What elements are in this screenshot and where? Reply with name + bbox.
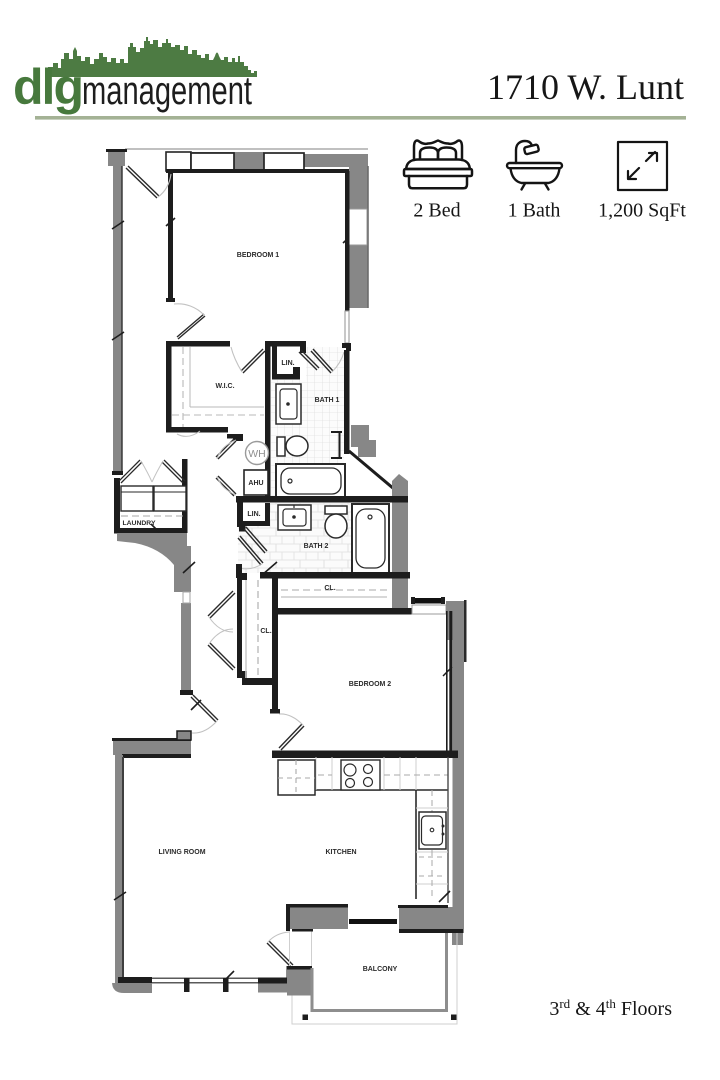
svg-text:LIVING ROOM: LIVING ROOM xyxy=(158,849,205,856)
svg-text:LIN.: LIN. xyxy=(281,360,294,367)
svg-text:management: management xyxy=(82,69,252,113)
svg-text:WH: WH xyxy=(248,448,266,460)
svg-text:BALCONY: BALCONY xyxy=(363,966,398,973)
svg-text:LAUNDRY: LAUNDRY xyxy=(123,520,156,527)
svg-text:1710 W. Lunt: 1710 W. Lunt xyxy=(487,67,684,107)
svg-text:LIN.: LIN. xyxy=(247,511,260,518)
svg-text:BEDROOM 2: BEDROOM 2 xyxy=(349,681,392,688)
svg-text:dlg: dlg xyxy=(13,59,82,115)
svg-text:BATH 2: BATH 2 xyxy=(304,543,329,550)
svg-text:AHU: AHU xyxy=(248,480,263,487)
svg-text:BEDROOM 1: BEDROOM 1 xyxy=(237,252,280,259)
svg-text:1,200 SqFt: 1,200 SqFt xyxy=(598,200,686,222)
svg-text:KITCHEN: KITCHEN xyxy=(325,849,356,856)
svg-text:W.I.C.: W.I.C. xyxy=(215,383,234,390)
svg-text:CL.: CL. xyxy=(260,628,271,635)
svg-text:1 Bath: 1 Bath xyxy=(508,200,561,222)
svg-text:3rd & 4th Floors: 3rd & 4th Floors xyxy=(549,996,672,1020)
svg-text:CL.: CL. xyxy=(324,585,335,592)
svg-text:BATH 1: BATH 1 xyxy=(315,397,340,404)
svg-text:2 Bed: 2 Bed xyxy=(413,200,460,222)
